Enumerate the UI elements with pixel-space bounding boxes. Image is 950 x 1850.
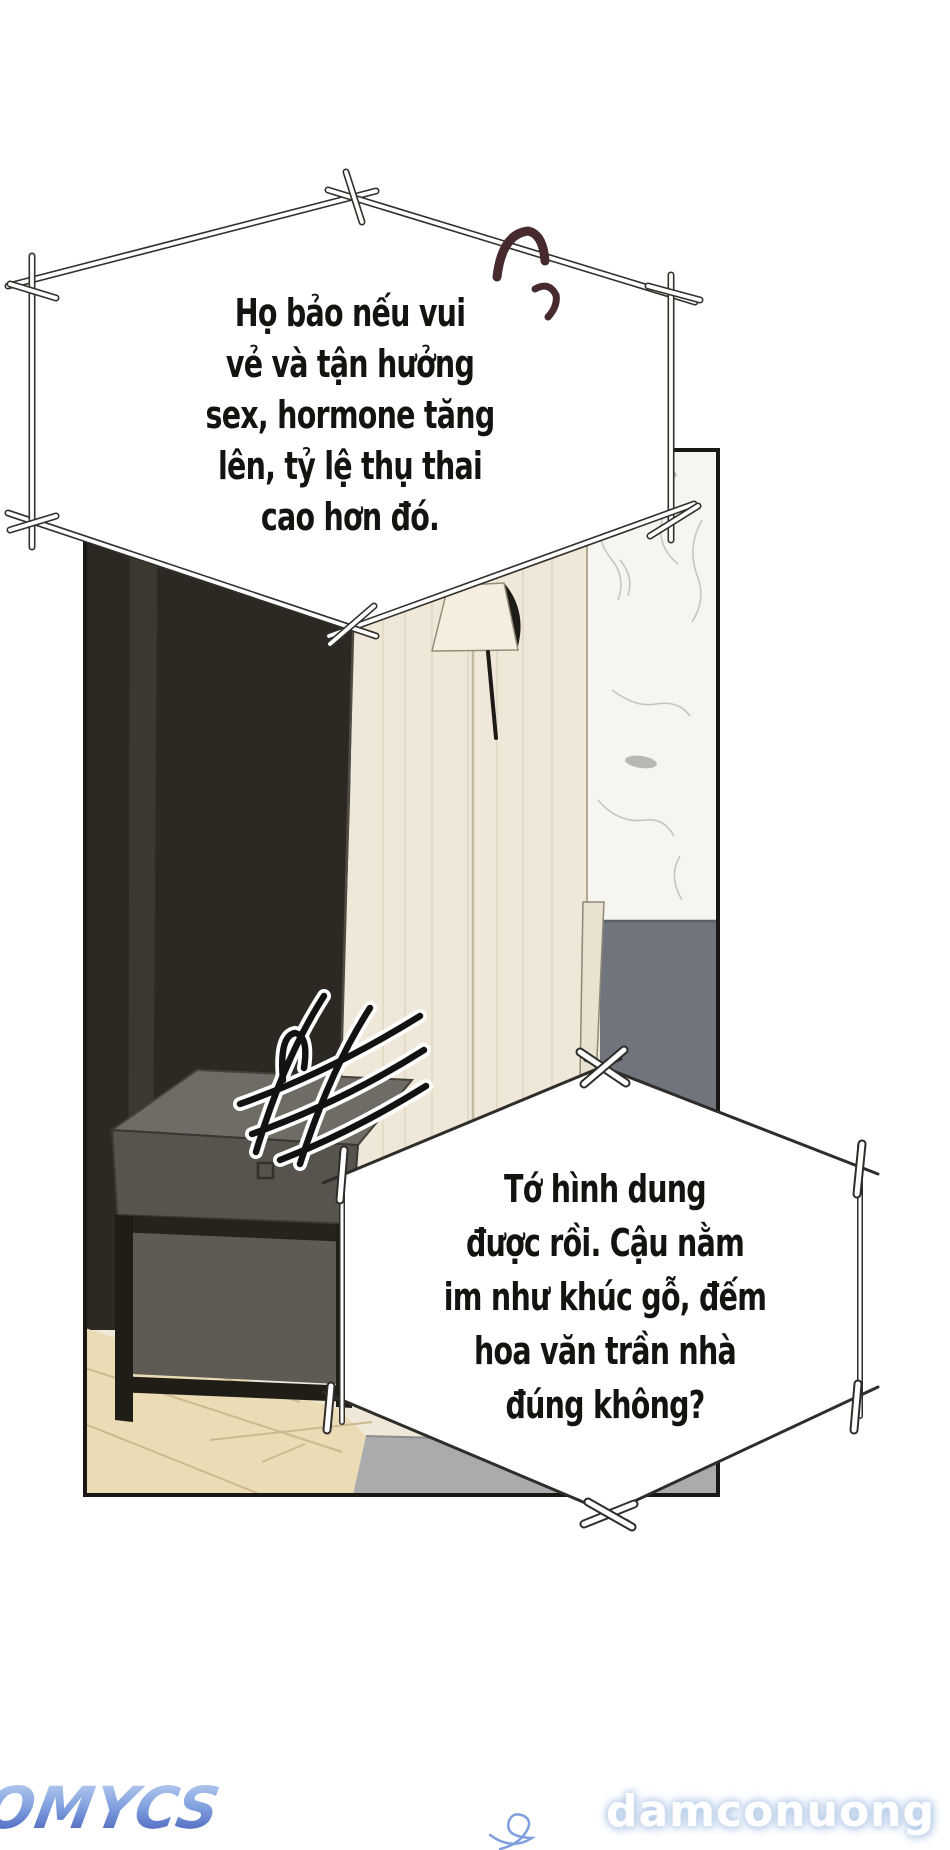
speech-line: vẻ và tận hưởng [174, 339, 527, 390]
comic-page: VCOMYCS Họ bảo nếu vui vẻ và tận hưởng s… [0, 0, 950, 1850]
logo-text: VCOMYCS [0, 1774, 226, 1841]
speech-line: cao hơn đó. [174, 492, 527, 543]
speech-line: lên, tỷ lệ thụ thai [174, 441, 527, 492]
logo-flower-icon [490, 1814, 532, 1849]
site-watermark: damconuong [606, 1786, 935, 1837]
speech-line: Họ bảo nếu vui [174, 288, 527, 339]
speech-line: im như khúc gỗ, đếm [436, 1270, 774, 1324]
comic-artwork: VCOMYCS [0, 0, 950, 1850]
speech-line: đúng không? [436, 1378, 774, 1432]
speech-line: hoa văn trần nhà [436, 1324, 774, 1378]
speech-line: sex, hormone tăng [174, 390, 527, 441]
speech-line: được rồi. Cậu nằm [436, 1216, 774, 1270]
speech-line: Tớ hình dung [436, 1162, 774, 1216]
translator-logo: VCOMYCS [0, 1774, 226, 1841]
speech-bubble-2-text: Tớ hình dung được rồi. Cậu nằm im như kh… [436, 1162, 774, 1432]
speech-bubble-1-text: Họ bảo nếu vui vẻ và tận hưởng sex, horm… [174, 288, 527, 543]
nightstand-shelf-back [132, 1230, 338, 1384]
